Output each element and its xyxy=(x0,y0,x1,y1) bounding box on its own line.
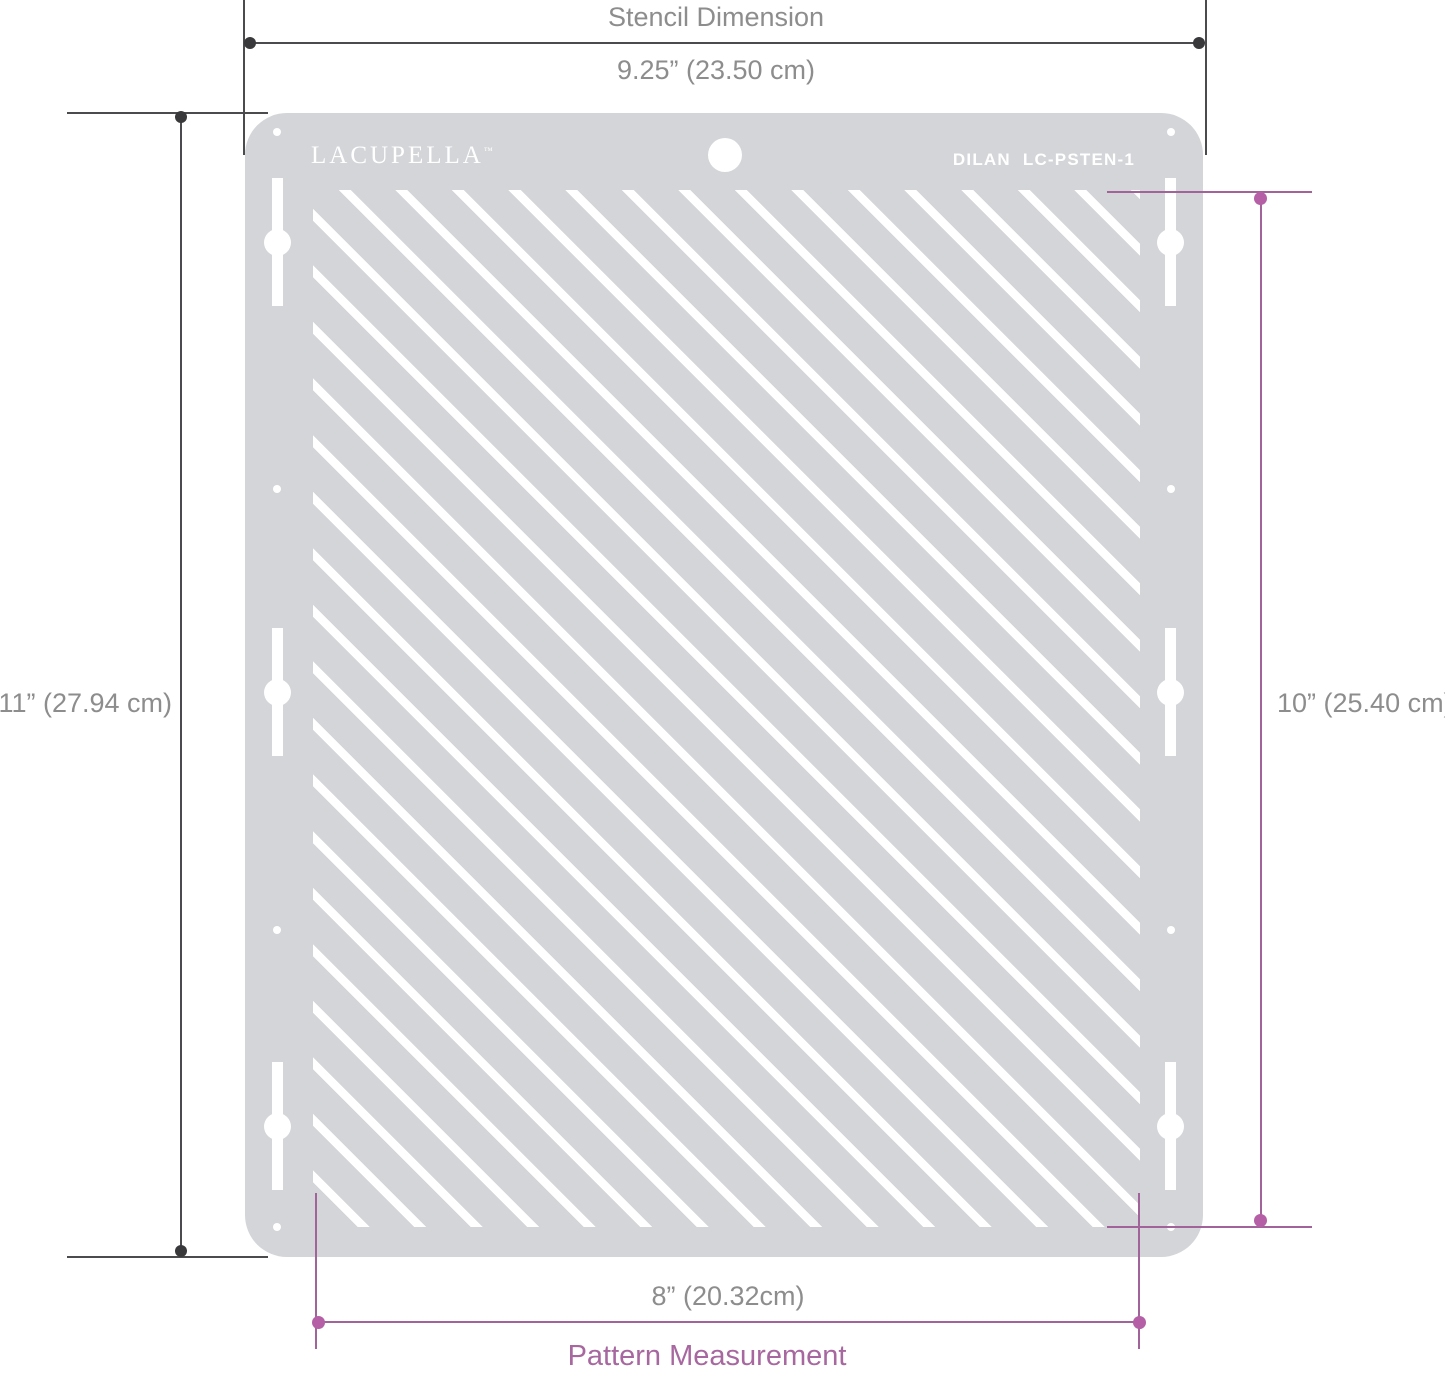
stencil-height-tick-top xyxy=(67,112,268,114)
stencil-height-tick-bottom xyxy=(67,1256,268,1258)
trademark-symbol: ™ xyxy=(484,146,493,156)
slot-circle xyxy=(264,679,291,706)
alignment-hole xyxy=(1167,485,1175,493)
registration-slot xyxy=(1157,1062,1184,1190)
model-code: DILANLC-PSTEN-1 xyxy=(953,150,1135,170)
alignment-hole xyxy=(1167,128,1175,136)
stencil-height-label: 11” (27.94 cm) xyxy=(0,688,172,719)
dimension-endpoint-dot xyxy=(312,1316,325,1329)
alignment-hole xyxy=(273,128,281,136)
dimension-endpoint-dot xyxy=(175,1245,187,1257)
dimension-endpoint-dot xyxy=(244,37,256,49)
stencil-width-extension-line-right xyxy=(1205,0,1207,155)
model-name-text: DILAN xyxy=(953,150,1011,169)
registration-slot xyxy=(264,628,291,756)
stencil-body: LACUPELLA™ DILANLC-PSTEN-1 xyxy=(245,113,1203,1257)
stencil-width-dimension-line xyxy=(250,42,1199,44)
dimension-endpoint-dot xyxy=(1254,192,1267,205)
model-sku-text: LC-PSTEN-1 xyxy=(1023,150,1135,169)
registration-slot xyxy=(1157,628,1184,756)
stencil-dimension-title: Stencil Dimension xyxy=(466,2,966,33)
slot-circle xyxy=(264,1113,291,1140)
stencil-width-label: 9.25” (23.50 cm) xyxy=(466,55,966,86)
stencil-width-extension-line-left xyxy=(243,0,245,155)
brand-logo: LACUPELLA™ xyxy=(311,142,493,170)
alignment-hole xyxy=(273,485,281,493)
slot-circle xyxy=(1157,1113,1184,1140)
slot-circle xyxy=(264,229,291,256)
brand-name: LACUPELLA xyxy=(311,142,484,169)
dimension-endpoint-dot xyxy=(1133,1316,1146,1329)
diagonal-stripe-pattern xyxy=(313,190,1140,1227)
diagram-canvas: LACUPELLA™ DILANLC-PSTEN-1 xyxy=(0,0,1445,1373)
dimension-endpoint-dot xyxy=(1254,1214,1267,1227)
alignment-hole xyxy=(273,926,281,934)
stencil-height-dimension-line xyxy=(180,117,182,1251)
pattern-height-dimension-line xyxy=(1260,198,1262,1221)
pattern-width-dimension-line xyxy=(318,1321,1139,1323)
pattern-width-label: 8” (20.32cm) xyxy=(478,1281,978,1312)
alignment-hole xyxy=(273,1223,281,1231)
pattern-height-label: 10” (25.40 cm) xyxy=(1277,688,1445,719)
slot-circle xyxy=(1157,679,1184,706)
registration-slot xyxy=(264,178,291,306)
alignment-hole xyxy=(1167,926,1175,934)
pattern-measurement-title: Pattern Measurement xyxy=(457,1340,957,1373)
dimension-endpoint-dot xyxy=(1193,37,1205,49)
hanging-hole xyxy=(708,138,742,172)
slot-circle xyxy=(1157,229,1184,256)
registration-slot xyxy=(1157,178,1184,306)
dimension-endpoint-dot xyxy=(175,111,187,123)
registration-slot xyxy=(264,1062,291,1190)
pattern-height-tick-top xyxy=(1107,191,1312,193)
